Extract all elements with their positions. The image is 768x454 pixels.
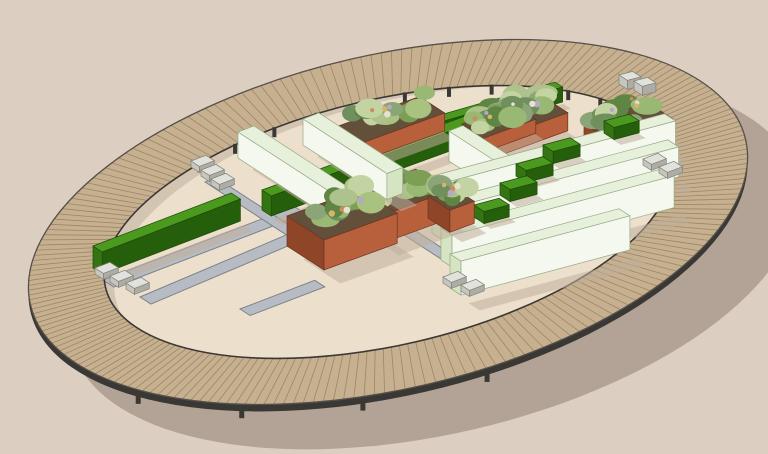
deck-support-post	[403, 92, 407, 102]
deck-support-post	[272, 127, 276, 137]
flower-accent	[484, 111, 488, 115]
foliage-clump	[329, 189, 357, 207]
deck-support-post	[566, 90, 570, 100]
flower-accent	[610, 108, 614, 112]
deck-support-post	[233, 144, 237, 154]
flower-accent	[370, 108, 374, 112]
flower-accent	[473, 116, 478, 121]
flower-accent	[634, 103, 639, 108]
flower-accent	[448, 190, 454, 196]
flower-accent	[358, 197, 364, 203]
deck-support-post	[485, 373, 490, 382]
foliage-clump	[305, 204, 327, 220]
flower-accent	[344, 207, 351, 214]
deck-support-post	[447, 87, 451, 97]
render-canvas	[0, 0, 768, 454]
foliage-clump	[355, 99, 384, 119]
flower-accent	[384, 111, 391, 118]
deck-support-post	[239, 409, 244, 418]
flower-accent	[529, 101, 535, 107]
deck-support-post	[360, 402, 365, 411]
foliage-clump	[498, 106, 527, 128]
deck-support-post	[490, 85, 494, 95]
foliage-clump	[414, 86, 435, 100]
flower-accent	[442, 183, 446, 187]
flower-accent	[511, 102, 515, 106]
deck-support-post	[136, 395, 141, 404]
flower-accent	[329, 210, 335, 216]
flower-accent	[382, 106, 387, 111]
flower-accent	[630, 97, 634, 101]
model-viewport[interactable]	[0, 0, 768, 454]
flower-accent	[454, 183, 460, 189]
flower-accent	[387, 105, 392, 110]
foliage-clump	[405, 99, 431, 119]
flower-accent	[488, 115, 493, 120]
